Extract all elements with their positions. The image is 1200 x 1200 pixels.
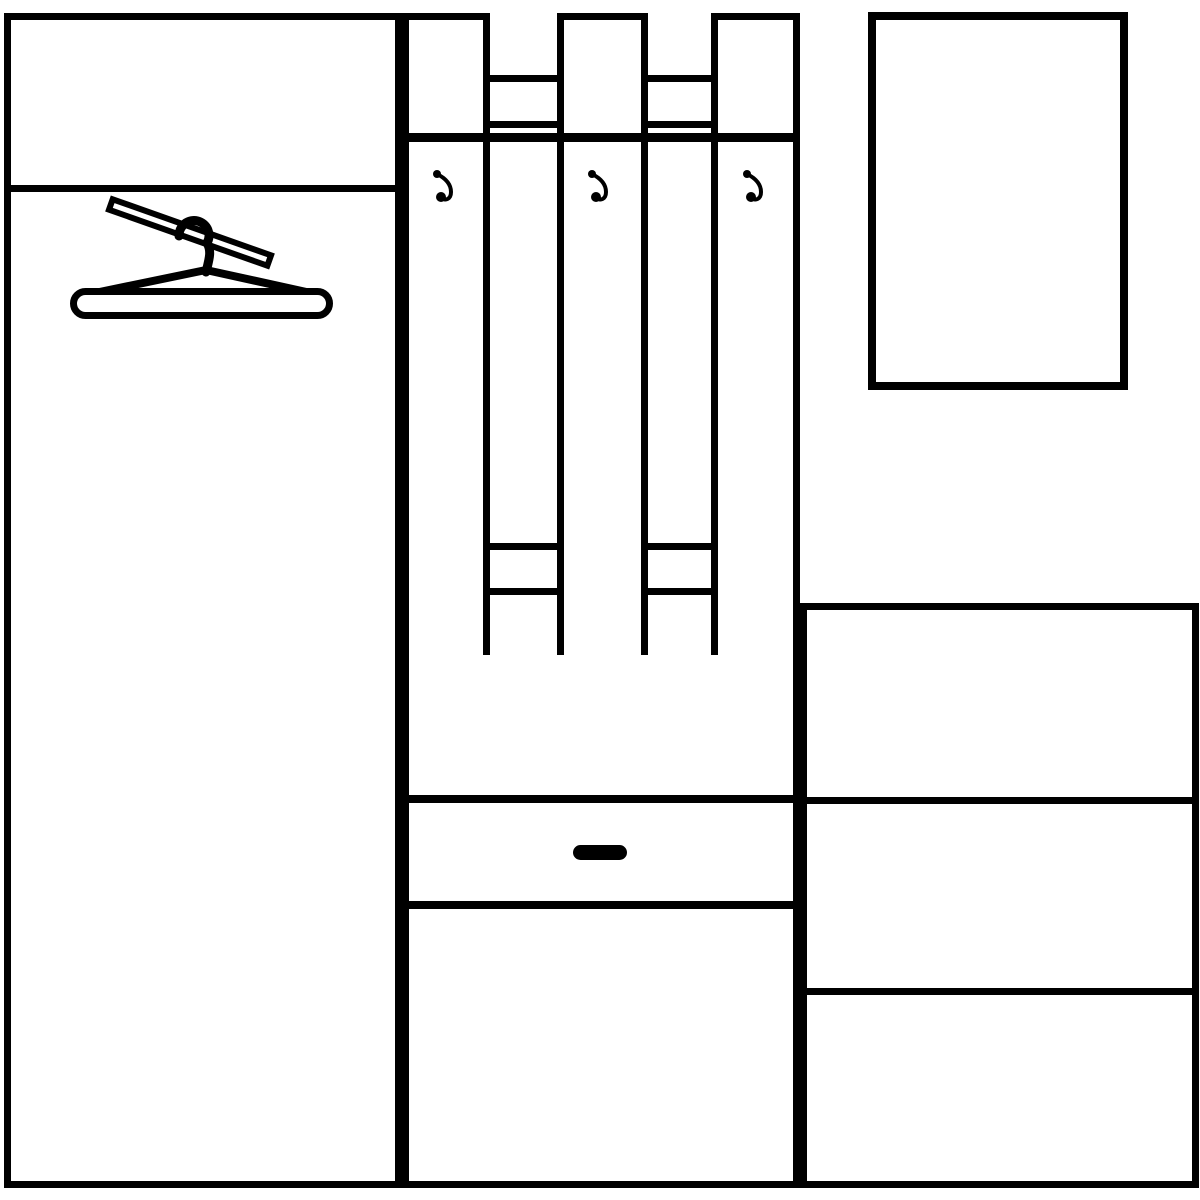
drawer-handle [573, 845, 627, 860]
rail-top-left [490, 75, 557, 128]
diagram-layer [0, 0, 1200, 1200]
coat-hook-icon [738, 166, 772, 210]
shoe-cabinet [800, 603, 1199, 1188]
hat-shelf-edge [402, 133, 800, 142]
rail-bottom-left [490, 543, 557, 595]
rail-bottom-right [648, 543, 711, 595]
coat-hook-icon [583, 166, 617, 210]
bench-cabinet [402, 655, 800, 1188]
bench-seat-divider [409, 795, 793, 803]
coat-hook-icon [428, 166, 462, 210]
mirror-frame [868, 12, 1128, 390]
clothes-hanger-icon [60, 188, 345, 330]
coat-panel-center [557, 13, 648, 662]
cabinet-divider-lower [807, 988, 1192, 995]
hallway-furniture-diagram [0, 0, 1200, 1200]
coat-panel-left [402, 13, 490, 662]
coat-panel-right [711, 13, 800, 662]
rail-top-right [648, 75, 711, 128]
drawer-bottom-divider [409, 901, 793, 909]
cabinet-divider-upper [807, 797, 1192, 804]
